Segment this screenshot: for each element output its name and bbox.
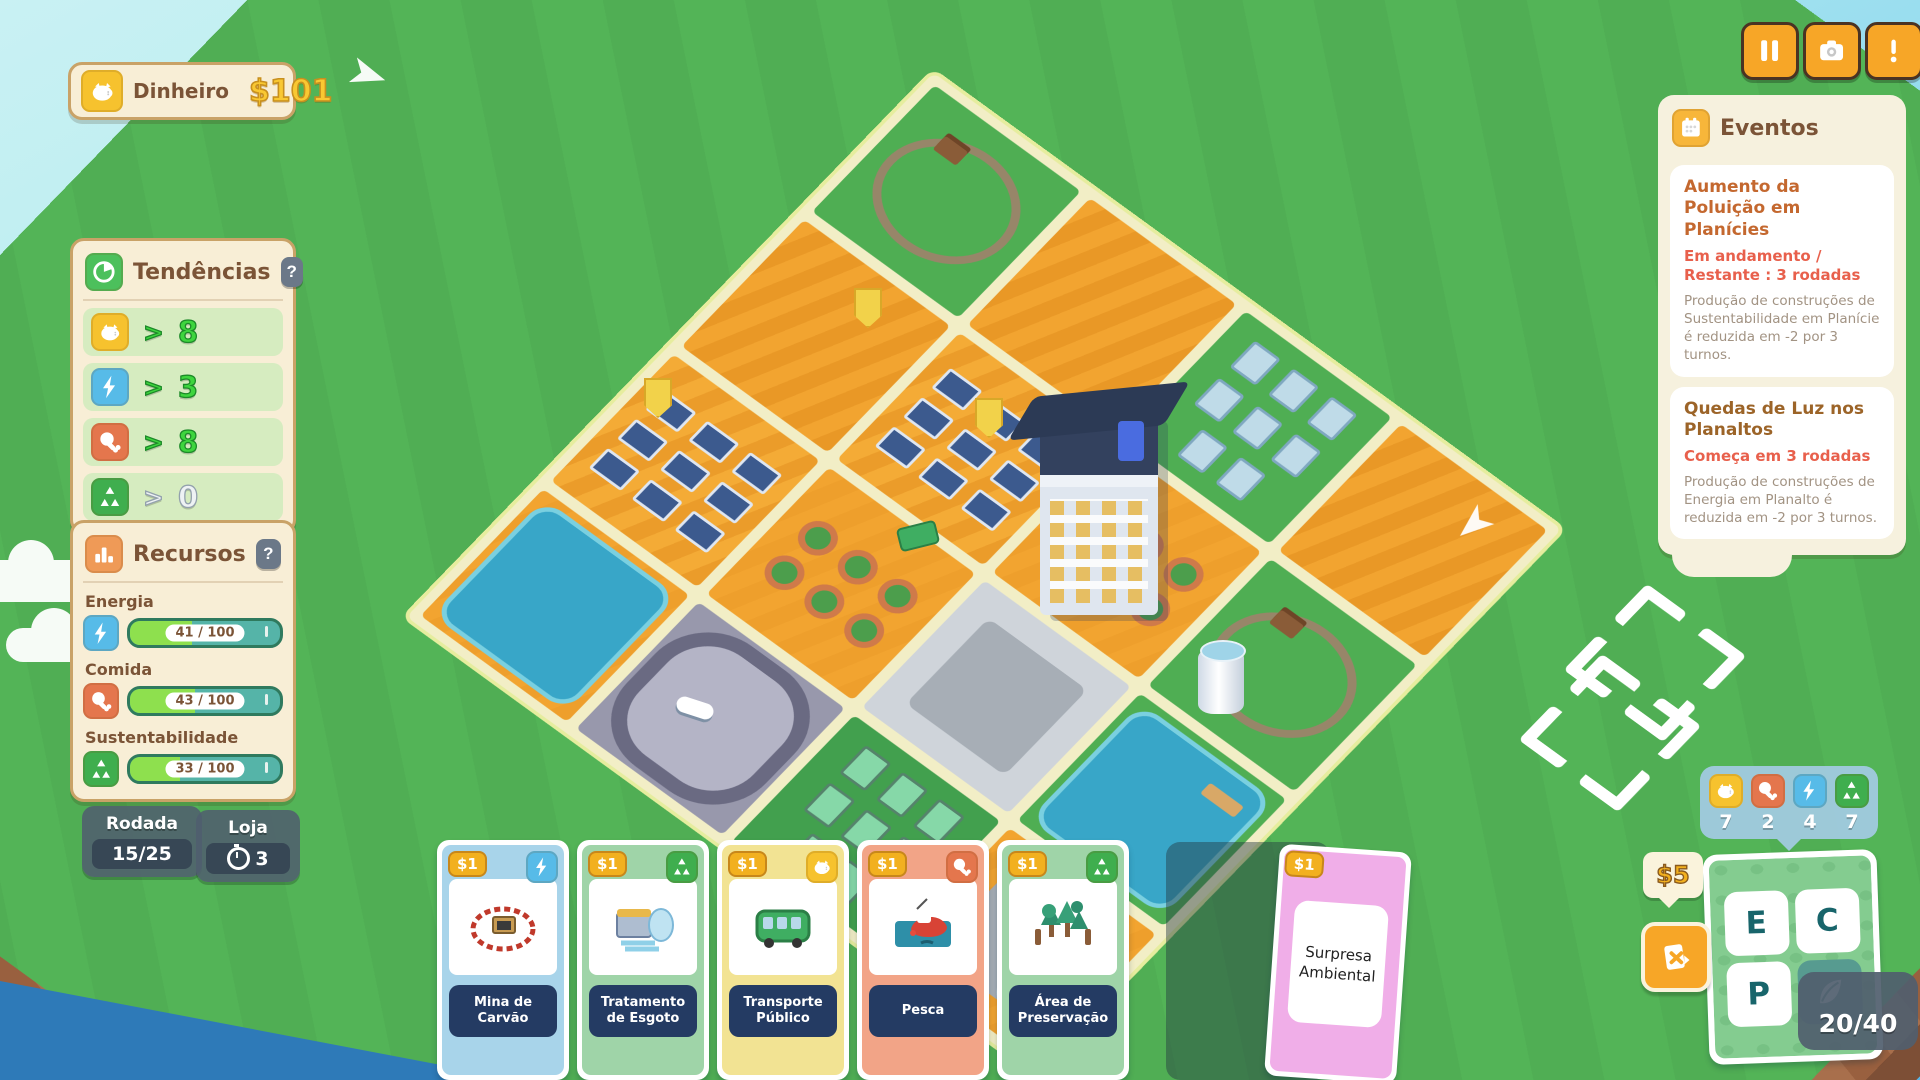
discard-card-icon bbox=[1658, 939, 1694, 975]
deck-counter-badge: 20/40 bbox=[1798, 972, 1918, 1050]
event-status: Em andamento / Restante : 3 rodadas bbox=[1684, 247, 1880, 286]
pie-clock-icon bbox=[85, 253, 123, 291]
card-cost-badge: $1 bbox=[868, 851, 907, 877]
food-progress-value: 43 / 100 bbox=[165, 693, 244, 710]
lightning-icon bbox=[526, 851, 558, 883]
deck-composition-tooltip: 7 2 4 7 bbox=[1700, 766, 1878, 839]
event-card: Quedas de Luz nos Planaltos Começa em 3 … bbox=[1670, 387, 1894, 540]
special-card-environmental-surprise[interactable]: $1 Surpresa Ambiental bbox=[1264, 844, 1412, 1080]
trends-help-button[interactable]: ? bbox=[281, 257, 303, 287]
recycle-icon bbox=[1835, 774, 1869, 808]
round-value: 15/25 bbox=[92, 839, 192, 869]
card-title: Pesca bbox=[869, 985, 977, 1037]
recycle-icon bbox=[666, 851, 698, 883]
event-title: Aumento da Poluição em Planícies bbox=[1684, 177, 1880, 241]
camera-button[interactable] bbox=[1803, 22, 1861, 80]
energy-progress-value: 41 / 100 bbox=[165, 625, 244, 642]
bar-chart-icon bbox=[85, 535, 123, 573]
event-status: Começa em 3 rodadas bbox=[1684, 447, 1880, 467]
trend-row-money: > 8 bbox=[83, 308, 283, 356]
card-art bbox=[589, 879, 697, 975]
resources-help-button[interactable]: ? bbox=[256, 539, 281, 569]
trend-op: > bbox=[143, 373, 164, 402]
resource-label-sustainability: Sustentabilidade bbox=[85, 728, 281, 747]
trend-op: > bbox=[143, 428, 164, 457]
trend-row-food: > 8 bbox=[83, 418, 283, 466]
events-panel: Eventos Aumento da Poluição em Planícies… bbox=[1658, 95, 1906, 555]
calendar-icon bbox=[1672, 109, 1710, 147]
lightning-icon bbox=[1793, 774, 1827, 808]
draw-cost-bubble: $5 bbox=[1643, 852, 1703, 898]
recycle-icon bbox=[1086, 851, 1118, 883]
trend-op: > bbox=[143, 318, 164, 347]
trend-value: 0 bbox=[178, 480, 198, 514]
money-label: Dinheiro bbox=[133, 79, 229, 103]
count-food: 2 bbox=[1751, 811, 1785, 833]
resource-label-food: Comida bbox=[85, 660, 281, 679]
shop-button[interactable]: Loja 3 bbox=[196, 810, 300, 882]
game-screen: Dinheiro $101 Tendências ? > 8 > 3 > bbox=[0, 0, 1920, 1080]
alert-button[interactable] bbox=[1865, 22, 1920, 80]
stopwatch-icon bbox=[227, 847, 250, 870]
drumstick-icon bbox=[83, 683, 119, 719]
sustainability-progress-bar: 33 / 100 bbox=[127, 754, 283, 784]
event-card: Aumento da Poluição em Planícies Em anda… bbox=[1670, 165, 1894, 377]
card-title: Área de Preservação bbox=[1009, 985, 1117, 1037]
discard-button[interactable] bbox=[1641, 922, 1711, 992]
trend-row-sustainability: > 0 bbox=[83, 473, 283, 521]
trend-value: 8 bbox=[178, 315, 198, 349]
recycle-icon bbox=[91, 478, 129, 516]
resources-panel: Recursos ? Energia 41 / 100 Comida 43 / … bbox=[70, 520, 296, 802]
trend-value: 8 bbox=[178, 425, 198, 459]
deck-letter-tile: P bbox=[1726, 961, 1792, 1027]
pause-icon bbox=[1754, 35, 1785, 66]
hand-card-coal-mine[interactable]: $1 Mina de Carvão bbox=[437, 840, 569, 1080]
resource-row-sustainability: 33 / 100 bbox=[83, 751, 283, 787]
card-title: Transporte Público bbox=[729, 985, 837, 1037]
shop-value: 3 bbox=[255, 848, 268, 870]
trends-title: Tendências bbox=[133, 260, 271, 285]
energy-progress-bar: 41 / 100 bbox=[127, 618, 283, 648]
bar-tick bbox=[265, 694, 268, 705]
card-cost-badge: $1 bbox=[1008, 851, 1047, 877]
pig-icon bbox=[806, 851, 838, 883]
pause-button[interactable] bbox=[1741, 22, 1799, 80]
resource-label-energy: Energia bbox=[85, 592, 281, 611]
shop-label: Loja bbox=[206, 818, 290, 838]
deck-letter-tile: E bbox=[1723, 890, 1789, 956]
events-title: Eventos bbox=[1720, 116, 1892, 141]
money-counter: Dinheiro $101 bbox=[68, 62, 296, 120]
deck-counter-value: 20/40 bbox=[1819, 1009, 1898, 1038]
card-cost-badge: $1 bbox=[448, 851, 487, 877]
trend-row-energy: > 3 bbox=[83, 363, 283, 411]
resource-row-food: 43 / 100 bbox=[83, 683, 283, 719]
recycle-icon bbox=[83, 751, 119, 787]
card-art bbox=[869, 879, 977, 975]
round-counter: Rodada 15/25 bbox=[82, 806, 202, 877]
bar-tick bbox=[265, 626, 268, 637]
pig-icon bbox=[91, 313, 129, 351]
bar-tick bbox=[265, 762, 268, 773]
resource-row-energy: 41 / 100 bbox=[83, 615, 283, 651]
lightning-icon bbox=[91, 368, 129, 406]
count-money: 7 bbox=[1709, 811, 1743, 833]
card-cost-badge: $1 bbox=[588, 851, 627, 877]
event-title: Quedas de Luz nos Planaltos bbox=[1684, 399, 1880, 442]
card-art bbox=[449, 879, 557, 975]
count-sustainability: 7 bbox=[1835, 811, 1869, 833]
deck-letter-tile: C bbox=[1794, 887, 1860, 953]
lightning-icon bbox=[83, 615, 119, 651]
hand-card-preservation-area[interactable]: $1 Área de Preservação bbox=[997, 840, 1129, 1080]
special-card-title: Surpresa Ambiental bbox=[1287, 900, 1389, 1028]
card-art bbox=[1009, 879, 1117, 975]
hand-card-public-transport[interactable]: $1 Transporte Público bbox=[717, 840, 849, 1080]
event-description: Produção de construções de Energia em Pl… bbox=[1684, 473, 1880, 528]
exclamation-icon bbox=[1878, 35, 1909, 66]
hand-card-sewage-treatment[interactable]: $1 Tratamento de Esgoto bbox=[577, 840, 709, 1080]
pig-icon bbox=[1709, 774, 1743, 808]
hand-card-fishing[interactable]: $1 Pesca bbox=[857, 840, 989, 1080]
sustainability-progress-value: 33 / 100 bbox=[165, 761, 244, 778]
pig-icon bbox=[81, 70, 123, 112]
card-title: Mina de Carvão bbox=[449, 985, 557, 1037]
event-description: Produção de construções de Sustentabilid… bbox=[1684, 292, 1880, 365]
card-cost-badge: $1 bbox=[728, 851, 767, 877]
money-value: $101 bbox=[249, 74, 333, 109]
drumstick-icon bbox=[91, 423, 129, 461]
trend-value: 3 bbox=[178, 370, 198, 404]
drumstick-icon bbox=[1751, 774, 1785, 808]
card-art bbox=[729, 879, 837, 975]
resources-title: Recursos bbox=[133, 542, 246, 567]
trend-op: > bbox=[143, 483, 164, 512]
card-title: Tratamento de Esgoto bbox=[589, 985, 697, 1037]
food-progress-bar: 43 / 100 bbox=[127, 686, 283, 716]
draw-cost-value: $5 bbox=[1656, 861, 1689, 889]
card-cost-badge: $1 bbox=[1284, 850, 1325, 879]
drumstick-icon bbox=[946, 851, 978, 883]
trends-panel: Tendências ? > 8 > 3 > 8 > 0 bbox=[70, 238, 296, 534]
count-energy: 4 bbox=[1793, 811, 1827, 833]
round-label: Rodada bbox=[92, 814, 192, 834]
camera-icon bbox=[1816, 35, 1847, 66]
